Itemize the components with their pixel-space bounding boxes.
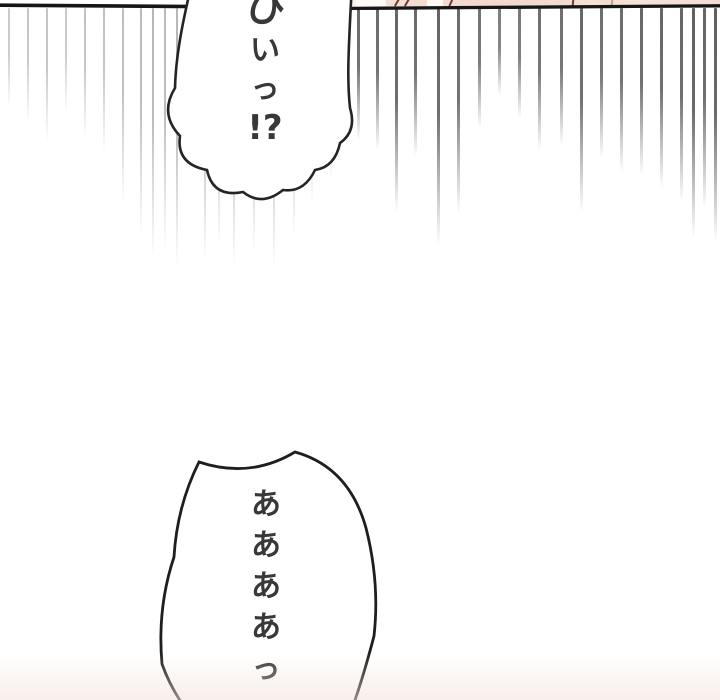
bubble-char: あ [251, 490, 281, 520]
ink-layer [0, 0, 720, 700]
panel-border-line-right [350, 6, 720, 9]
bubble-char: っ [251, 654, 280, 683]
bubble-char: い [250, 36, 280, 66]
panel-border-line-left [0, 5, 197, 6]
scream-bubble-text: ああああっ… [243, 490, 289, 700]
bubble-char: !? [247, 111, 282, 145]
bubble-char: あ [251, 613, 281, 643]
bubble-char: … [253, 696, 279, 700]
bubble-char: あ [251, 531, 281, 561]
shock-bubble-text: ひいっ!? [242, 0, 288, 145]
manga-panel: ひいっ!? ああああっ… [0, 0, 720, 700]
bubble-char: っ [250, 74, 279, 103]
bubble-char: ひ [245, 0, 285, 28]
bubble-char: あ [251, 572, 281, 602]
